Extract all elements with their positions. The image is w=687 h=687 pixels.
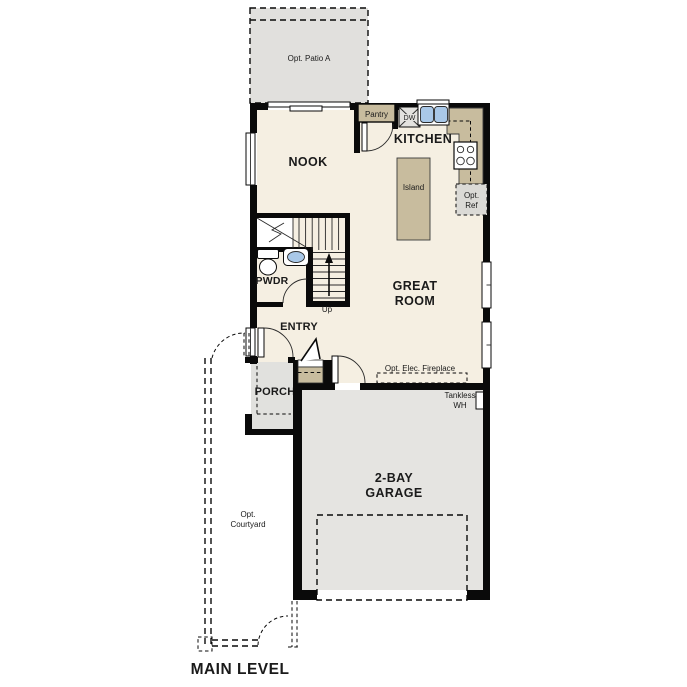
patio: Opt. Patio A xyxy=(250,8,368,103)
courtyard-right-boundary xyxy=(288,601,300,647)
dishwasher: DW xyxy=(399,107,420,127)
floorplan-canvas: Opt. Patio A PORCH 2-BAY GARAGE Tankless… xyxy=(0,0,687,687)
porch-bottom-wall xyxy=(251,429,293,435)
garage: 2-BAY GARAGE Tankless WH xyxy=(302,390,487,600)
closet-shelf xyxy=(298,367,323,383)
great-room-label-line1: GREAT xyxy=(393,279,438,293)
pantry-door-leaf xyxy=(362,123,367,151)
greatroom-window-lower xyxy=(482,322,491,368)
pwdr-label: PWDR xyxy=(256,275,289,287)
entry-label: ENTRY xyxy=(280,321,318,333)
courtyard-gate-bottom-arc xyxy=(258,616,288,645)
courtyard-bottom-boundary xyxy=(212,640,258,646)
porch-label: PORCH xyxy=(255,386,296,398)
courtyard-label-line1: Opt. xyxy=(240,510,255,519)
courtyard-gate-top-arc xyxy=(212,333,245,358)
courtyard-label-line2: Courtyard xyxy=(230,520,265,529)
kitchen-sink xyxy=(418,104,449,125)
floorplan-drawing: Opt. Patio A PORCH 2-BAY GARAGE Tankless… xyxy=(0,0,687,687)
range xyxy=(454,142,477,169)
sink-icon xyxy=(284,249,309,266)
understair-closet-floor xyxy=(257,218,293,247)
nook-window xyxy=(246,133,255,185)
entry-door-leaf xyxy=(258,328,264,357)
tankless-label-line2: WH xyxy=(453,401,467,410)
fireplace-label: Opt. Elec. Fireplace xyxy=(385,364,456,373)
garage-label-line2: GARAGE xyxy=(365,486,422,500)
greatroom-window-upper xyxy=(482,262,491,308)
nook-label: NOOK xyxy=(288,155,327,169)
great-room-label-line2: ROOM xyxy=(395,294,436,308)
entry-sidelite-window xyxy=(246,328,255,356)
porch-post xyxy=(245,414,252,435)
stairs-up-label: Up xyxy=(322,305,333,314)
porch: PORCH xyxy=(245,362,295,435)
dishwasher-label: DW xyxy=(404,115,416,122)
garage-entry-door-leaf xyxy=(332,356,338,383)
sliding-glass-door xyxy=(268,102,350,111)
island: Island xyxy=(397,158,430,240)
kitchen-label: KITCHEN xyxy=(394,132,452,146)
garage-label-line1: 2-BAY xyxy=(375,471,414,485)
opt-ref: Opt. Ref xyxy=(456,184,487,215)
plan-title: MAIN LEVEL xyxy=(191,661,290,678)
opt-ref-label-line1: Opt. xyxy=(464,191,479,200)
island-label: Island xyxy=(403,183,424,192)
patio-label: Opt. Patio A xyxy=(288,54,331,63)
opt-ref-label-line2: Ref xyxy=(465,201,478,210)
pantry-label: Pantry xyxy=(365,110,388,119)
courtyard-left-boundary xyxy=(205,358,211,646)
tankless-label-line1: Tankless xyxy=(444,391,475,400)
toilet-icon xyxy=(258,250,279,276)
